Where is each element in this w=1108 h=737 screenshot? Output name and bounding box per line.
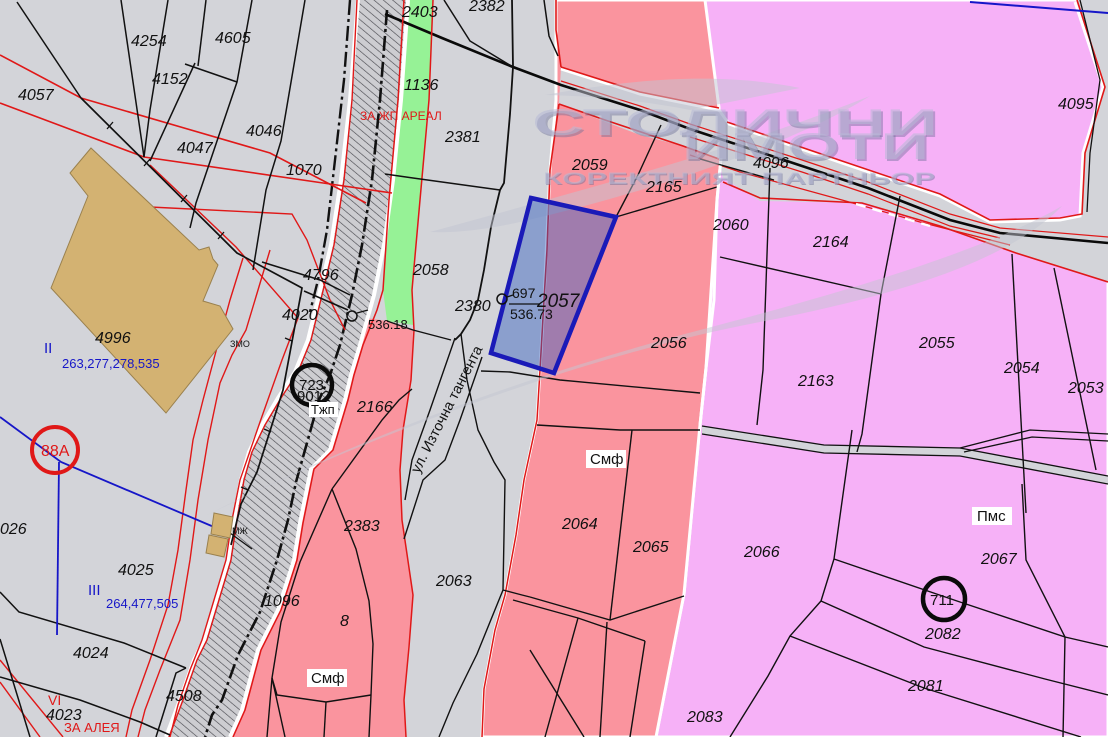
svg-text:2055: 2055 xyxy=(918,335,955,352)
svg-text:1096: 1096 xyxy=(264,593,300,610)
svg-text:ИМОТИ: ИМОТИ xyxy=(682,126,929,167)
svg-text:2164: 2164 xyxy=(812,234,849,251)
svg-text:8: 8 xyxy=(340,613,349,630)
svg-text:4096: 4096 xyxy=(753,155,789,172)
svg-text:VI: VI xyxy=(48,692,61,708)
svg-text:4605: 4605 xyxy=(215,30,251,47)
svg-text:III: III xyxy=(88,582,101,599)
svg-text:264,477,505: 264,477,505 xyxy=(106,596,178,611)
svg-text:4152: 4152 xyxy=(152,71,188,88)
svg-text:2380: 2380 xyxy=(454,298,491,315)
svg-text:2403: 2403 xyxy=(401,4,438,21)
svg-text:4020: 4020 xyxy=(282,307,318,324)
svg-text:2058: 2058 xyxy=(412,262,449,279)
svg-text:2064: 2064 xyxy=(561,516,598,533)
svg-text:Смф: Смф xyxy=(311,670,345,687)
svg-text:МЖ: МЖ xyxy=(232,526,248,536)
svg-text:4047: 4047 xyxy=(177,140,214,157)
svg-text:2082: 2082 xyxy=(924,626,961,643)
svg-text:2066: 2066 xyxy=(743,544,780,561)
svg-text:Пмс: Пмс xyxy=(977,508,1006,525)
svg-text:2060: 2060 xyxy=(712,217,749,234)
svg-text:2065: 2065 xyxy=(632,539,669,556)
svg-text:2083: 2083 xyxy=(686,709,723,726)
svg-text:Смф: Смф xyxy=(590,451,624,468)
svg-text:2165: 2165 xyxy=(645,179,682,196)
svg-text:2063: 2063 xyxy=(435,573,472,590)
svg-text:2383: 2383 xyxy=(343,518,380,535)
svg-text:2163: 2163 xyxy=(797,373,834,390)
svg-text:2057: 2057 xyxy=(536,291,581,312)
svg-text:4024: 4024 xyxy=(73,645,109,662)
svg-text:536.18: 536.18 xyxy=(368,317,408,332)
svg-text:4254: 4254 xyxy=(131,33,167,50)
svg-text:2054: 2054 xyxy=(1003,360,1040,377)
svg-text:ЗА ЖП АРЕАЛ: ЗА ЖП АРЕАЛ xyxy=(360,109,442,123)
svg-text:711: 711 xyxy=(930,592,954,609)
svg-text:2166: 2166 xyxy=(356,399,393,416)
svg-text:4057: 4057 xyxy=(18,87,55,104)
svg-text:026: 026 xyxy=(0,521,27,538)
svg-text:697: 697 xyxy=(512,285,536,301)
svg-text:2081: 2081 xyxy=(907,678,944,695)
svg-text:2382: 2382 xyxy=(468,0,505,15)
svg-text:2053: 2053 xyxy=(1067,380,1104,397)
svg-text:2381: 2381 xyxy=(444,129,481,146)
svg-text:ЗМО: ЗМО xyxy=(230,339,250,349)
svg-text:4095: 4095 xyxy=(1058,96,1094,113)
svg-text:263,277,278,535: 263,277,278,535 xyxy=(62,356,160,371)
svg-text:4796: 4796 xyxy=(303,267,339,284)
svg-text:Тжп: Тжп xyxy=(311,402,335,417)
svg-text:4025: 4025 xyxy=(118,562,154,579)
svg-text:4046: 4046 xyxy=(246,123,282,140)
svg-text:2056: 2056 xyxy=(650,335,687,352)
svg-text:4508: 4508 xyxy=(166,688,202,705)
svg-text:1136: 1136 xyxy=(404,77,439,94)
svg-text:1070: 1070 xyxy=(286,162,322,179)
svg-text:2059: 2059 xyxy=(571,157,608,174)
svg-text:88A: 88A xyxy=(41,443,70,460)
svg-text:4996: 4996 xyxy=(95,330,131,347)
svg-text:ЗА АЛЕЯ: ЗА АЛЕЯ xyxy=(64,720,120,735)
svg-text:2067: 2067 xyxy=(980,551,1018,568)
svg-text:II: II xyxy=(44,340,52,357)
